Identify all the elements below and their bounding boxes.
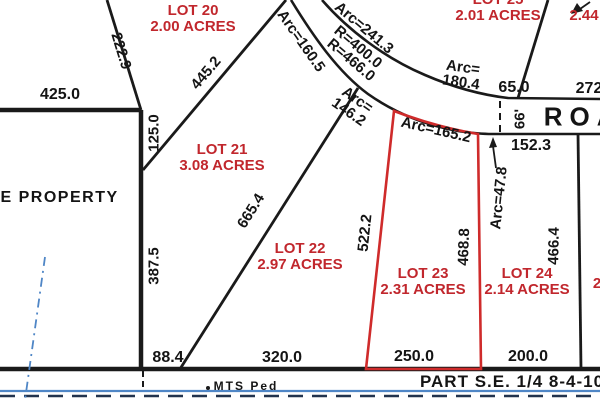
road-name-label: ROAD xyxy=(544,102,600,133)
lot25-acres: 2.01 ACRES xyxy=(455,8,540,24)
lot22-label: LOT 22 2.97 ACRES xyxy=(257,241,342,273)
lot21-label: LOT 21 3.08 ACRES xyxy=(179,142,264,174)
lot23-label: LOT 23 2.31 ACRES xyxy=(380,266,465,298)
arc-47-arrow-line xyxy=(493,146,496,168)
lot23-acres: 2.31 ACRES xyxy=(380,282,465,298)
state-property-label: ATE PROPERTY xyxy=(0,189,119,207)
dim-320: 320.0 xyxy=(262,349,302,367)
lot24-name: LOT 24 xyxy=(484,266,569,282)
lot22-name: LOT 22 xyxy=(257,241,342,257)
dim-468-8: 468.8 xyxy=(455,228,473,266)
dim-387-5: 387.5 xyxy=(146,247,163,285)
lot-east-partial-label: 2 xyxy=(593,276,600,292)
lot21-acres: 3.08 ACRES xyxy=(179,158,264,174)
lot24-east-line xyxy=(578,133,581,369)
section-quarter-label: PART S.E. 1/4 8-4-10 xyxy=(420,372,600,392)
dim-466-4: 466.4 xyxy=(545,227,563,265)
lot-ne-partial-acres: 2.44 xyxy=(569,8,598,24)
lot23-name: LOT 23 xyxy=(380,266,465,282)
lot20-acres: 2.00 ACRES xyxy=(150,19,235,35)
dim-272: 272 xyxy=(576,80,600,98)
dim-125: 125.0 xyxy=(146,114,163,152)
lot22-acres: 2.97 ACRES xyxy=(257,257,342,273)
lot20-name: LOT 20 xyxy=(150,3,235,19)
meander-line-blue xyxy=(25,257,45,400)
mts-ped-label: MTS Ped xyxy=(214,379,279,393)
arc-47-arrow-head xyxy=(489,137,497,148)
lot21-name: LOT 21 xyxy=(179,142,264,158)
lot24-acres: 2.14 ACRES xyxy=(484,282,569,298)
arc-180-4-label: Arc= 180.4 xyxy=(441,58,482,93)
dim-425: 425.0 xyxy=(40,86,80,104)
dim-152-3: 152.3 xyxy=(511,137,551,155)
lot20-label: LOT 20 2.00 ACRES xyxy=(150,3,235,35)
dim-200: 200.0 xyxy=(508,348,548,366)
road-width-label: 66' xyxy=(512,109,529,129)
monument-point xyxy=(206,386,210,390)
dim-88-4: 88.4 xyxy=(152,349,183,367)
lot24-label: LOT 24 2.14 ACRES xyxy=(484,266,569,298)
lot21-lot22-line xyxy=(180,88,358,369)
plat-map: 425.0 222.9 445.2 125.0 387.5 665.4 522.… xyxy=(0,0,600,400)
dim-250: 250.0 xyxy=(394,348,434,366)
lot25-label: LOT 25 2.01 ACRES xyxy=(455,0,540,24)
dim-65: 65.0 xyxy=(498,79,529,97)
